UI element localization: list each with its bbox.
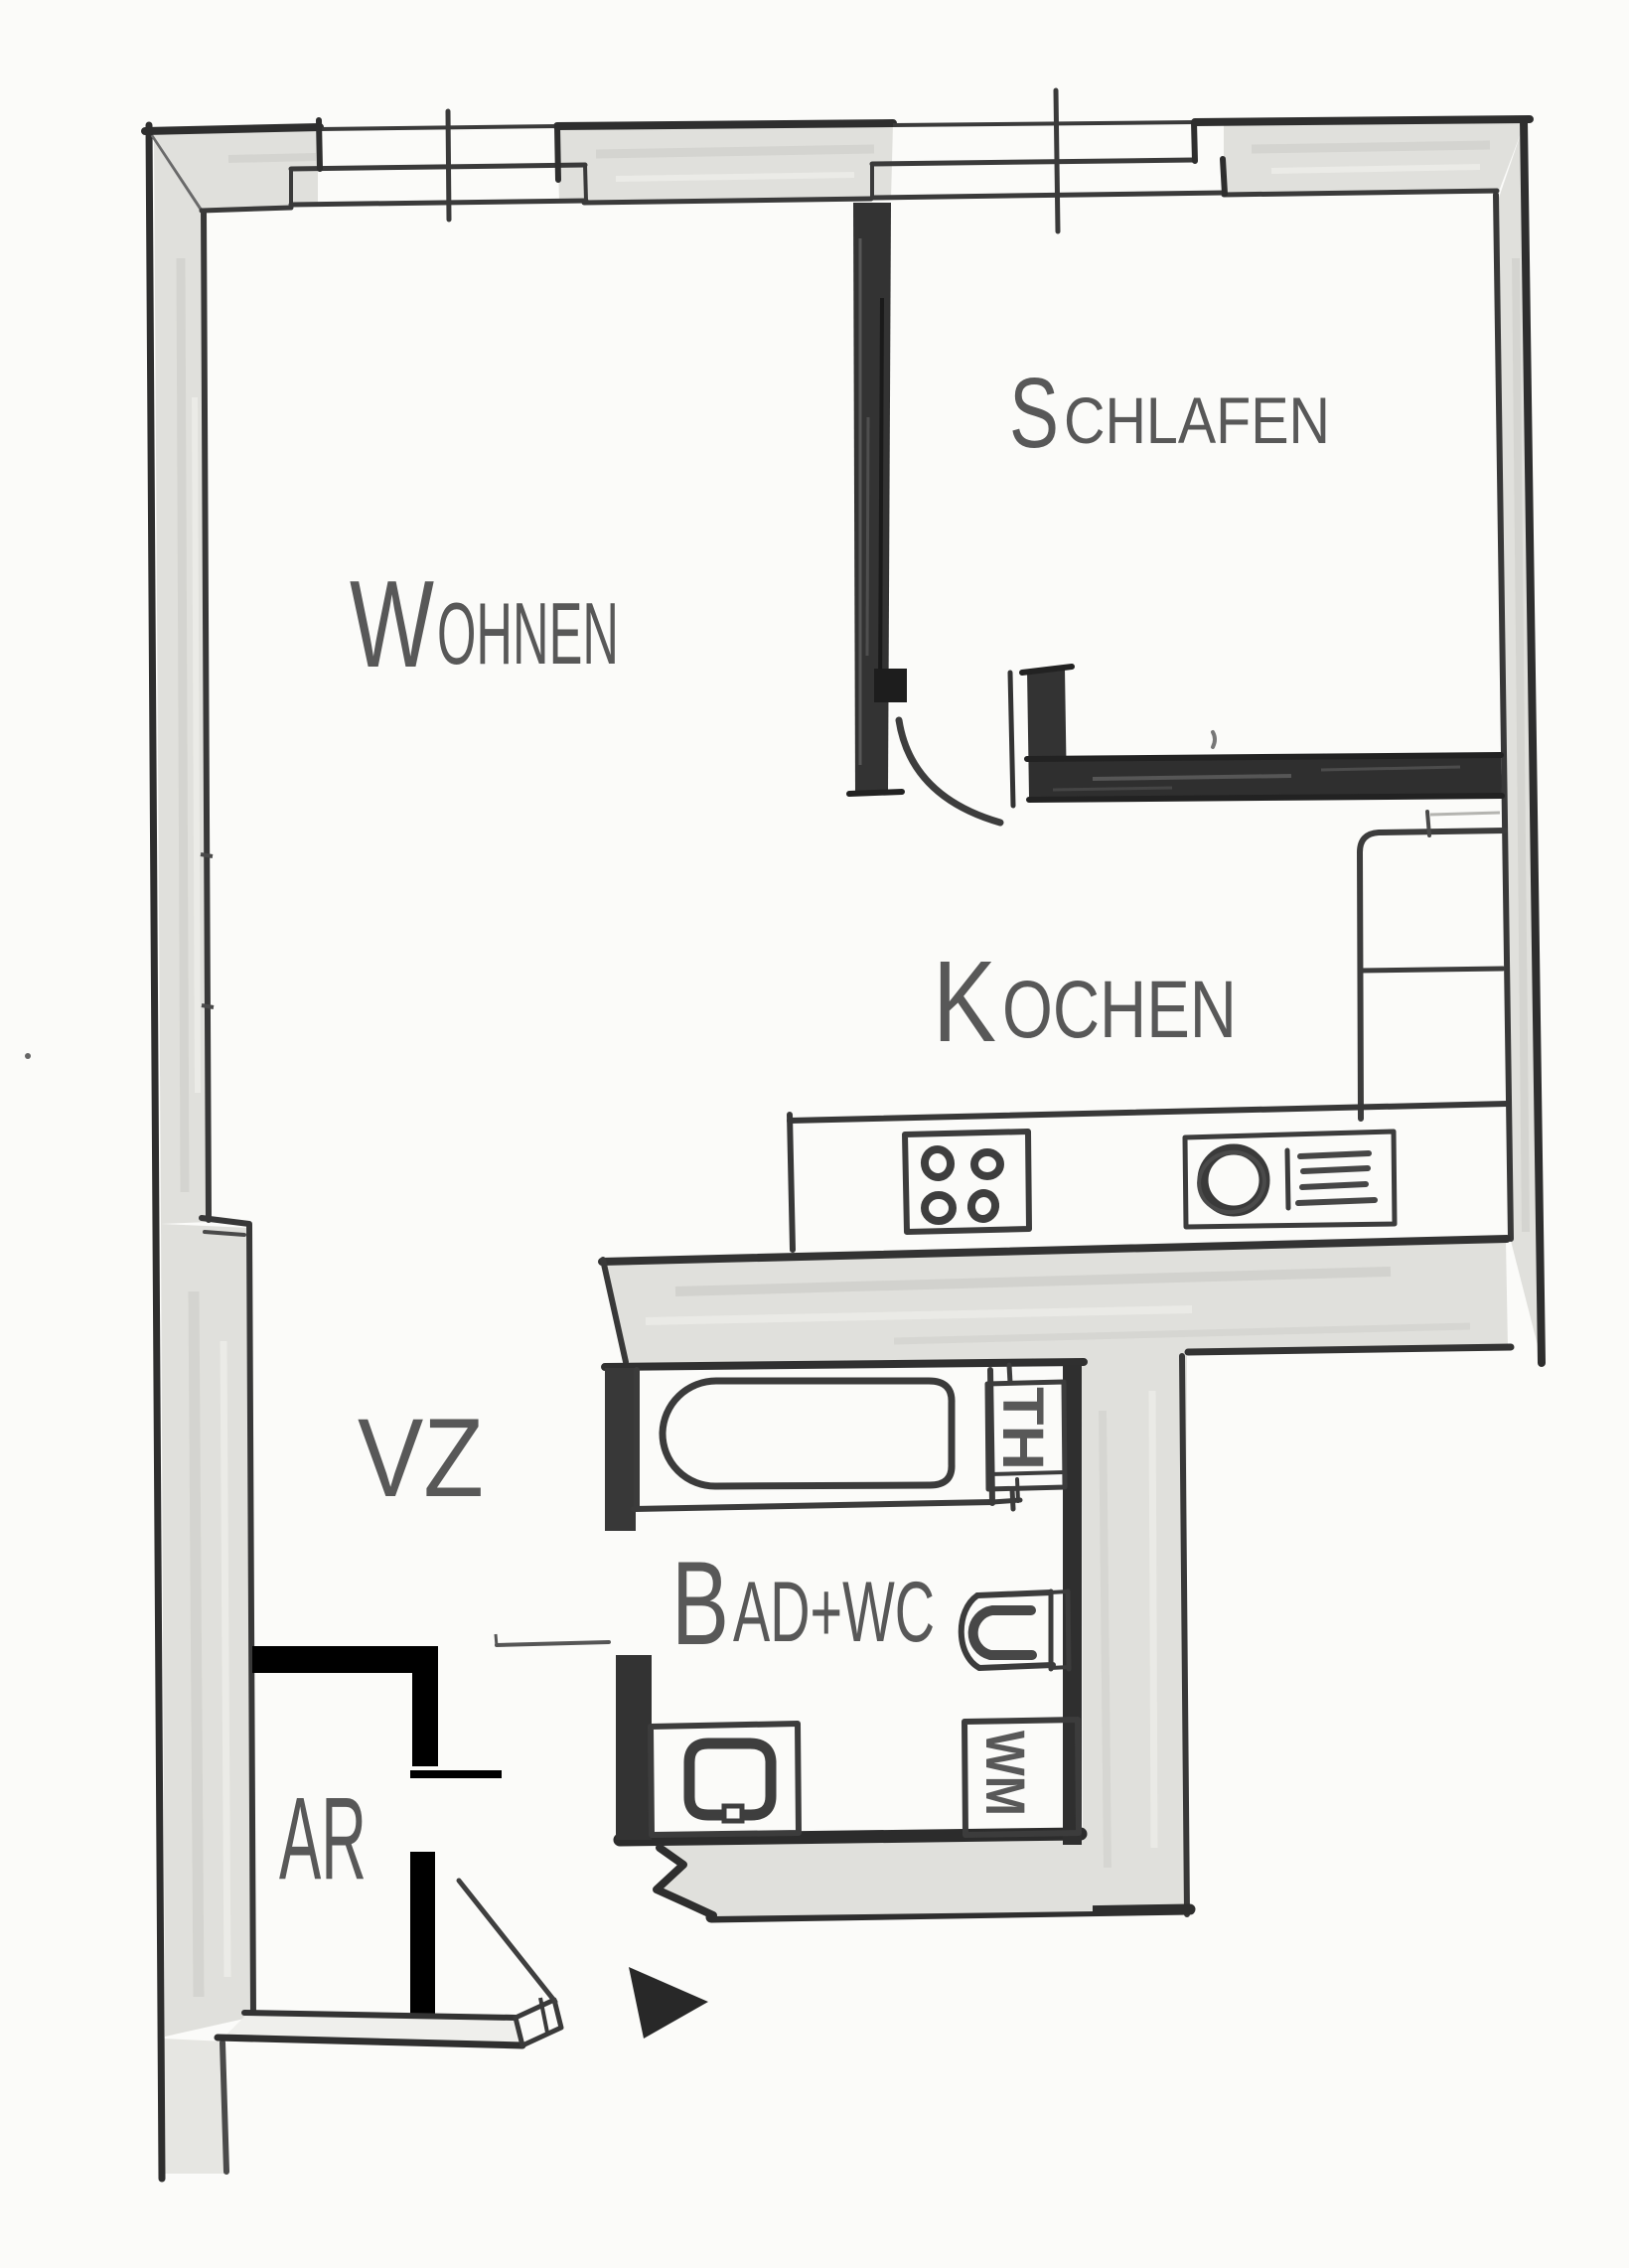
svg-text:OHNEN: OHNEN (437, 584, 619, 682)
svg-text:W: W (350, 556, 434, 693)
svg-text:CHLAFEN: CHLAFEN (1064, 383, 1330, 457)
svg-text:AD+WC: AD+WC (733, 1565, 935, 1660)
svg-text:OCHEN: OCHEN (1002, 965, 1237, 1055)
svg-text:WM: WM (974, 1731, 1037, 1816)
svg-text:AR: AR (279, 1773, 367, 1904)
svg-text:VZ: VZ (358, 1396, 484, 1520)
svg-text:TH: TH (990, 1387, 1055, 1470)
svg-text:B: B (671, 1537, 729, 1670)
svg-text:K: K (933, 937, 996, 1066)
svg-text:S: S (1009, 358, 1059, 469)
